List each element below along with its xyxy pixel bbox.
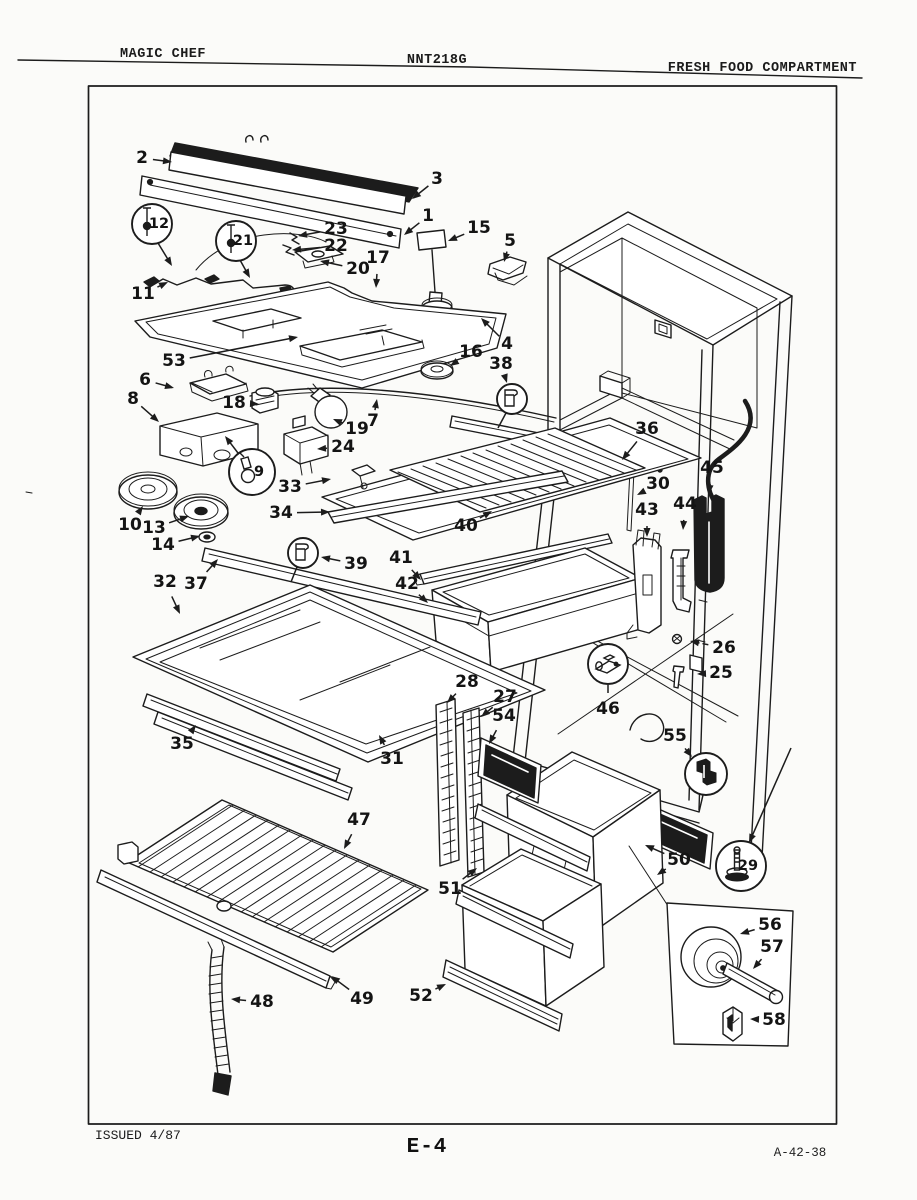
- brand-title: MAGIC CHEF: [120, 47, 206, 62]
- part-number: 30: [646, 474, 670, 494]
- callout-47: 47: [344, 810, 371, 849]
- part-number: 49: [350, 989, 374, 1009]
- part-number: 18: [222, 393, 246, 413]
- callout-33: 33: [278, 477, 331, 497]
- part-number: 42: [395, 574, 419, 594]
- part-number: 17: [366, 248, 390, 268]
- callout-44: 44: [673, 494, 697, 530]
- part-number: 41: [389, 548, 413, 568]
- part-number: 2: [136, 148, 148, 168]
- part-number: 46: [596, 699, 620, 719]
- part-number: 58: [762, 1010, 786, 1030]
- callout-46: 46: [588, 644, 628, 719]
- part-number: 11: [131, 284, 155, 304]
- part-number: 27: [493, 687, 517, 707]
- callout-7: 7: [367, 399, 379, 431]
- part-number: 37: [184, 574, 208, 594]
- balloon-number: 29: [738, 858, 758, 874]
- part-number: 10: [118, 515, 142, 535]
- callout-48: 48: [231, 992, 274, 1012]
- part-number: 26: [712, 638, 736, 658]
- balloon-number: 21: [233, 233, 253, 249]
- page-footer: ISSUED 4/87 E-4 A-42-38: [95, 1128, 826, 1160]
- balloon-number: 9: [254, 464, 264, 480]
- part-number: 8: [127, 389, 139, 409]
- callout-1: 1: [404, 206, 434, 235]
- callout-45: 45: [700, 458, 724, 494]
- callout-21: 21: [216, 221, 256, 278]
- part-number: 5: [504, 231, 516, 251]
- part-number: 4: [501, 334, 513, 354]
- callout-30: 30: [637, 474, 670, 495]
- part-number: 48: [250, 992, 274, 1012]
- part-number: 33: [278, 477, 302, 497]
- page-header: MAGIC CHEF NNT218G FRESH FOOD COMPARTMEN…: [18, 47, 862, 78]
- callout-6: 6: [139, 370, 174, 390]
- callout-14: 14: [151, 535, 200, 555]
- cabinet: [513, 212, 792, 858]
- part-number: 40: [454, 516, 478, 536]
- part-number: 31: [380, 749, 404, 769]
- part-number: 47: [347, 810, 371, 830]
- top-trim-assembly: [140, 136, 418, 248]
- callout-49: 49: [331, 976, 374, 1009]
- part-number: 51: [438, 879, 462, 899]
- part-number: 6: [139, 370, 151, 390]
- part-number: 44: [673, 494, 697, 514]
- callout-34: 34: [269, 503, 330, 523]
- part-number: 53: [162, 351, 186, 371]
- part-number: 3: [431, 169, 443, 189]
- part-number: 19: [345, 419, 369, 439]
- callout-54: 54: [489, 706, 516, 744]
- margin-mark: [26, 492, 32, 493]
- callout-37: 37: [184, 559, 218, 594]
- part-number: 22: [324, 236, 348, 256]
- part-number: 43: [635, 500, 659, 520]
- issued-date: ISSUED 4/87: [95, 1128, 181, 1143]
- part-number: 16: [459, 342, 483, 362]
- callout-26: 26: [690, 638, 736, 658]
- slide-tracks: [436, 699, 484, 877]
- service-manual-page: MAGIC CHEF NNT218G FRESH FOOD COMPARTMEN…: [0, 0, 917, 1200]
- callout-55: 55: [663, 726, 727, 812]
- part-number: 34: [269, 503, 293, 523]
- doc-number: A-42-38: [774, 1146, 827, 1160]
- callout-3: 3: [412, 169, 443, 199]
- callout-15: 15: [448, 218, 491, 241]
- part-number: 52: [409, 986, 433, 1006]
- callout-32: 32: [153, 572, 180, 614]
- top-cover-panel: [135, 282, 506, 388]
- part-number: 14: [151, 535, 175, 555]
- part-number: 15: [467, 218, 491, 238]
- part-number: 25: [709, 663, 733, 683]
- callout-20: 20: [320, 259, 370, 279]
- callout-11: 11: [131, 282, 168, 304]
- part-number: 1: [422, 206, 434, 226]
- part-number: 24: [331, 437, 355, 457]
- callout-12: 12: [132, 204, 172, 266]
- callout-10: 10: [118, 506, 143, 535]
- callout-52: 52: [409, 984, 446, 1006]
- part-number: 55: [663, 726, 687, 746]
- callout-8: 8: [127, 389, 159, 422]
- wire-shelf: [97, 800, 428, 1095]
- balloon-number: 12: [149, 216, 169, 232]
- part-number: 28: [455, 672, 479, 692]
- part-number: 38: [489, 354, 513, 374]
- page-number: E-4: [407, 1136, 448, 1159]
- part-number: 45: [700, 458, 724, 478]
- part-number: 32: [153, 572, 177, 592]
- diagram-art: [97, 136, 793, 1095]
- part-number: 35: [170, 734, 194, 754]
- callout-2: 2: [136, 148, 172, 168]
- part-number: 54: [492, 706, 516, 726]
- part-number: 57: [760, 937, 784, 957]
- callout-43: 43: [635, 500, 659, 537]
- part-number: 56: [758, 915, 782, 935]
- parts-diagram: MAGIC CHEF NNT218G FRESH FOOD COMPARTMEN…: [0, 0, 917, 1200]
- callout-38: 38: [489, 354, 527, 428]
- part-number: 50: [667, 850, 691, 870]
- callout-19: 19: [333, 419, 369, 439]
- part-number: 36: [635, 419, 659, 439]
- part-number: 39: [344, 554, 368, 574]
- part-number: 7: [367, 411, 379, 431]
